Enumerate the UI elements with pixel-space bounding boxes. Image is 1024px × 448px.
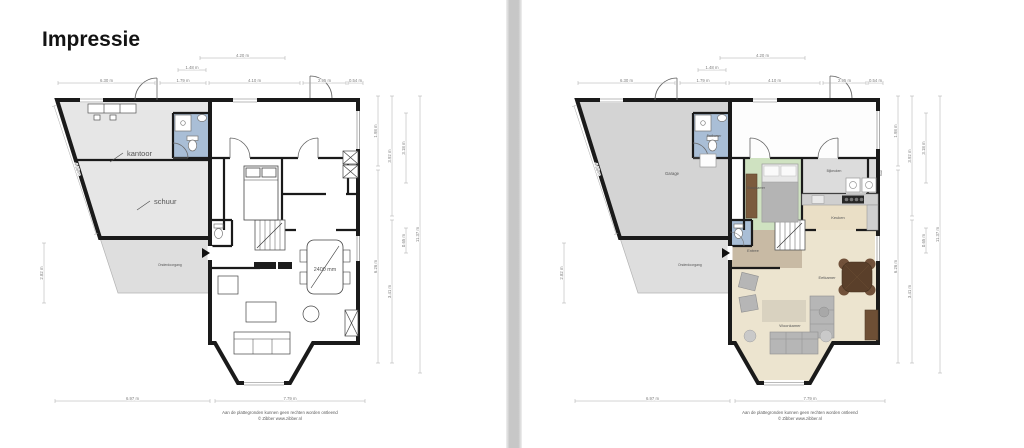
dimension-label: 11.37 m <box>935 226 940 242</box>
rug <box>762 300 806 322</box>
dimension-label: 6.30 m <box>100 78 114 83</box>
dimension-label: 7.79 m <box>283 396 297 401</box>
wardrobe <box>746 174 757 218</box>
dimension-label: 2.82 m <box>39 266 44 280</box>
dimension-label: 3.18 m <box>921 141 926 155</box>
room-label: Slaapkamer <box>747 186 766 190</box>
room-label: schuur <box>154 197 177 206</box>
round-dining-table <box>839 259 876 296</box>
room-label: Woonkamer <box>779 323 801 328</box>
dimension-label: 4.10 m <box>248 78 262 83</box>
room-hall <box>730 102 878 158</box>
disclaimer-line2: © Zibber www.zibber.nl <box>258 416 302 421</box>
dimension-label: 11.37 m <box>415 226 420 242</box>
dimension-label: 0.65 m <box>921 234 926 248</box>
dimension-label: 1.79 m <box>176 78 190 83</box>
room-label: Keuken <box>831 215 845 220</box>
tv-cabinet <box>254 262 292 269</box>
dimension-label: 3.92 m <box>907 149 912 163</box>
room-label: Eetkamer <box>818 275 836 280</box>
dimension-label: 3.92 m <box>387 149 392 163</box>
dimension-label: 3.41 m <box>387 285 392 299</box>
page: Impressie <box>0 0 1024 448</box>
bed <box>762 164 798 222</box>
page-divider <box>506 0 522 448</box>
room-label: Kast <box>879 170 883 176</box>
room-label: Garage <box>665 171 680 176</box>
dimension-label: 0.65 m <box>401 234 406 248</box>
room-label: Onderdoorgang <box>158 263 182 267</box>
dimension-label: 6.97 m <box>126 396 140 401</box>
room-label: kantoor <box>127 149 153 158</box>
dimension-label: 2.95 m <box>318 78 332 83</box>
floorplan-bw: 4.20 m1.48 m6.30 m1.79 m4.10 m2.95 m0.54… <box>30 48 500 440</box>
dimension-label: 1.98 m <box>373 124 378 138</box>
dimension-label: 6.26 m <box>373 260 378 274</box>
dimension-label: 1.98 m <box>893 124 898 138</box>
dimension-label: 1.48 m <box>185 65 199 70</box>
garage-box <box>700 154 716 167</box>
dimension-label: 4.10 m <box>768 78 782 83</box>
dimension-label: 2.82 m <box>559 266 564 280</box>
dimension-label: 0.54 m <box>349 78 363 83</box>
dimension-label: 0.54 m <box>869 78 883 83</box>
dimension-label: 6.26 m <box>893 260 898 274</box>
bed <box>244 166 278 220</box>
room-hall <box>210 102 358 158</box>
dimension-label: 6.97 m <box>646 396 660 401</box>
room-kitchen <box>282 194 358 230</box>
dimension-label: 2.95 m <box>838 78 852 83</box>
room-label: 2400 mm <box>314 267 337 273</box>
dimension-label: 4.20 m <box>236 53 250 58</box>
room-label: Bijkeuken <box>827 169 842 173</box>
dimension-label: 1.48 m <box>705 65 719 70</box>
room-label: Entree <box>747 248 760 253</box>
dimension-label: 3.18 m <box>401 141 406 155</box>
room-label: Badkamer <box>707 134 722 138</box>
dimension-label: 6.30 m <box>620 78 634 83</box>
floorplan-color: 4.20 m1.48 m6.30 m1.79 m4.10 m2.95 m0.54… <box>550 48 1020 440</box>
dimension-label: 3.41 m <box>907 285 912 299</box>
dimension-label: 4.20 m <box>756 53 770 58</box>
disclaimer-line1: Aan de plattegronden kunnen geen rechten… <box>222 410 338 415</box>
disclaimer-line1: Aan de plattegronden kunnen geen rechten… <box>742 410 858 415</box>
sideboard <box>865 310 878 340</box>
dimension-label: 1.79 m <box>696 78 710 83</box>
dimension-label: 7.79 m <box>803 396 817 401</box>
disclaimer-line2: © Zibber www.zibber.nl <box>778 416 822 421</box>
room-label: Onderdoorgang <box>678 263 702 267</box>
